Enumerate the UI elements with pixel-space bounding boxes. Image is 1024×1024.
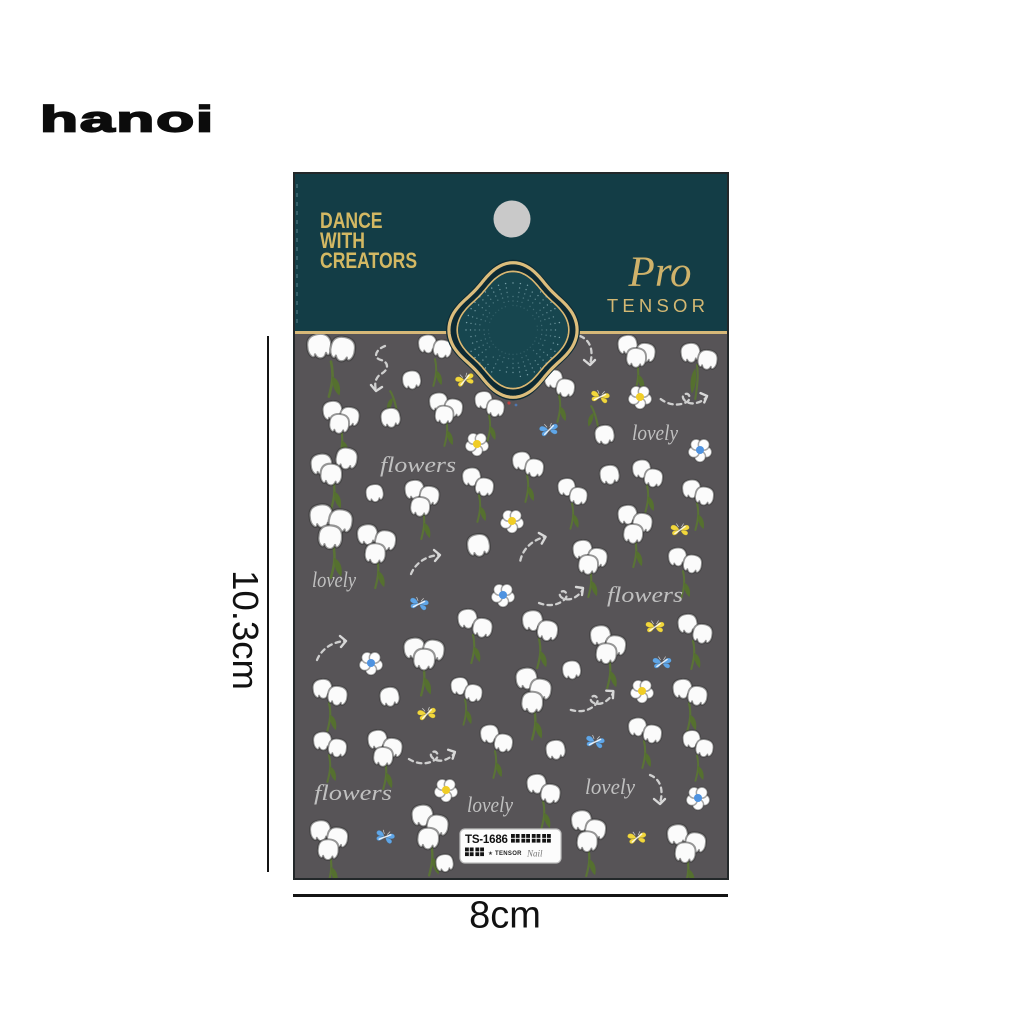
svg-text:lovely: lovely — [467, 792, 513, 817]
svg-text:★: ★ — [488, 850, 493, 857]
svg-text:CREATORS: CREATORS — [320, 249, 417, 273]
svg-text:TENSOR: TENSOR — [607, 295, 709, 316]
svg-text:lovely: lovely — [632, 420, 678, 445]
svg-text:Nail: Nail — [526, 849, 543, 859]
svg-text:Pro: Pro — [628, 249, 692, 296]
svg-text:lovely: lovely — [312, 567, 356, 592]
svg-text:flowers: flowers — [314, 780, 392, 805]
svg-text:flowers: flowers — [380, 452, 456, 477]
svg-text:lovely: lovely — [585, 774, 635, 799]
svg-text:TS-1686: TS-1686 — [465, 834, 508, 846]
svg-text:flowers: flowers — [607, 582, 683, 607]
svg-text:TENSOR: TENSOR — [495, 851, 522, 857]
